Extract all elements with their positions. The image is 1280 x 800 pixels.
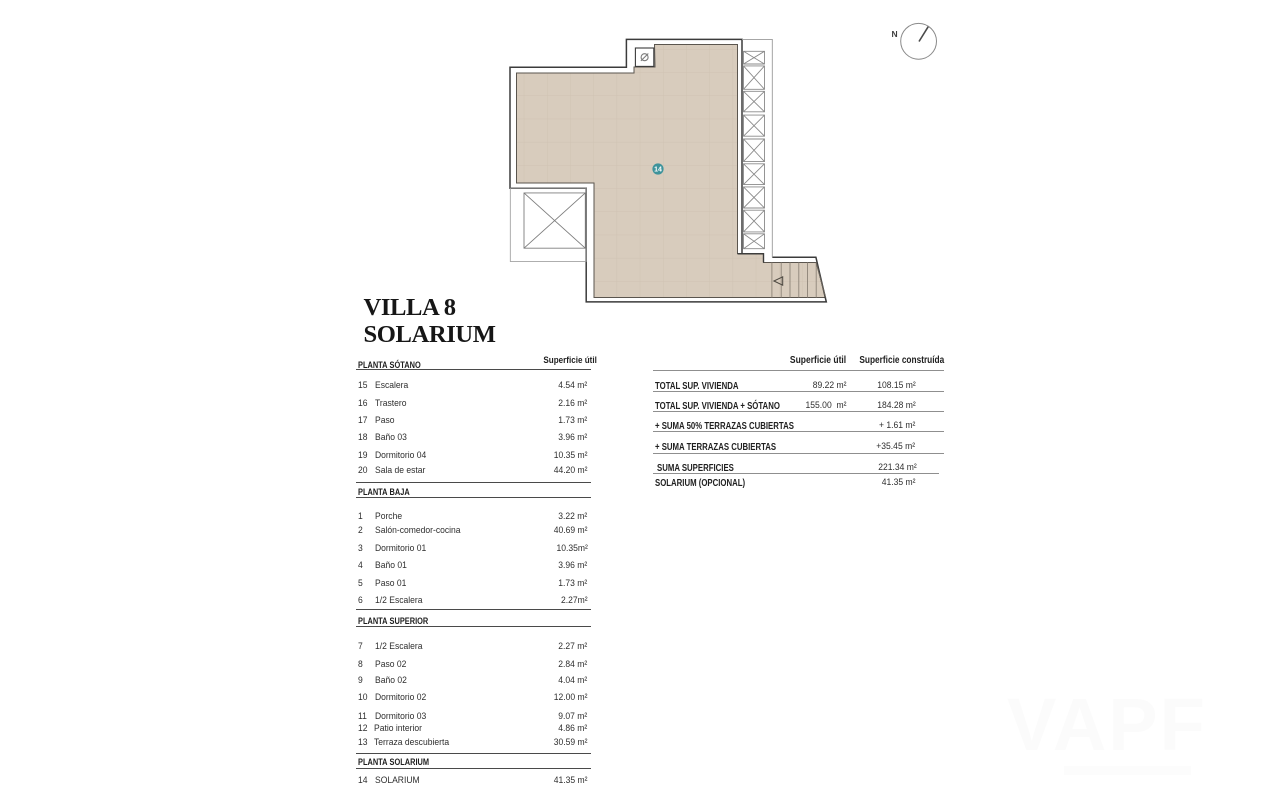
svg-text:VAPF: VAPF <box>1007 683 1207 766</box>
